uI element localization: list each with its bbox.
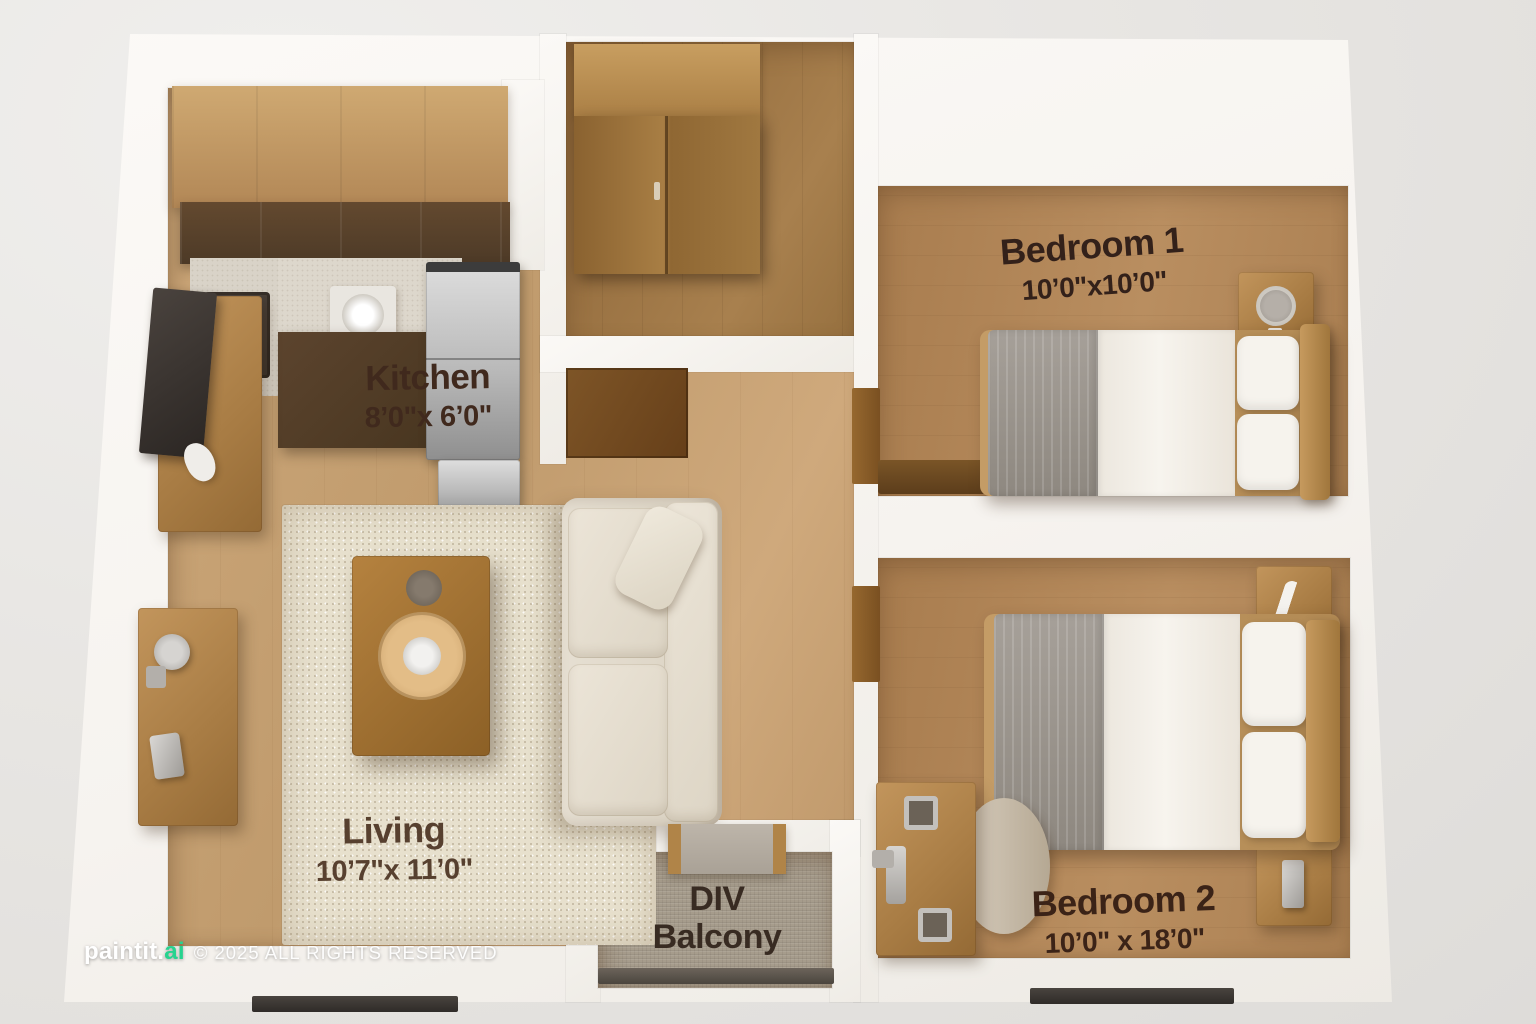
desk-gadget-cap — [872, 850, 894, 868]
bedroom-2-name: Bedroom 2 — [1031, 878, 1216, 925]
wardrobe-seam — [665, 116, 668, 274]
bedroom-2-door — [852, 586, 880, 682]
sideboard — [138, 608, 238, 826]
coffee-table-decor — [406, 570, 442, 606]
bedroom-1-blanket — [988, 330, 1098, 496]
wardrobe-handle — [654, 182, 660, 200]
bedroom-2-pillow-1 — [1242, 622, 1306, 726]
balcony-railing — [598, 968, 834, 984]
wardrobe-top — [574, 44, 760, 118]
bedroom-1-headboard — [1300, 324, 1330, 500]
sideboard-decor-vessel — [149, 732, 185, 780]
sideboard-decor-cube — [146, 666, 166, 688]
bedroom-2-nightstand-bottom — [1256, 846, 1332, 926]
living-name: Living — [315, 809, 473, 852]
desk-gadget-2 — [918, 908, 952, 942]
sofa-cushion-bottom — [568, 664, 668, 816]
wall-closet-bottom — [540, 336, 860, 372]
kitchen-pot — [342, 294, 384, 336]
closet-door — [566, 368, 688, 458]
watermark: paintit.ai © 2025 ALL RIGHTS RESERVED — [84, 938, 498, 966]
kitchen-cabinet-fronts — [180, 202, 510, 264]
bedroom-2-window-strip — [1030, 988, 1234, 1004]
coffee-table — [352, 556, 490, 756]
living-dimensions: 10’7"x 11’0" — [316, 854, 474, 889]
living-window-strip — [252, 996, 458, 1012]
sideboard-decor-bowl — [154, 634, 190, 670]
bedroom-1-lamp — [1256, 286, 1296, 326]
kitchen-fridge-top — [426, 262, 520, 272]
bedroom-1-label: Bedroom 1 10’0"x10’0" — [999, 220, 1187, 308]
bedroom-1-pillow-2 — [1237, 414, 1299, 490]
bedroom-2-nightstand-item — [1282, 860, 1304, 908]
desk-gadget-1 — [904, 796, 938, 830]
living-label: Living 10’7"x 11’0" — [315, 809, 473, 889]
bedroom-2-duvet — [1104, 614, 1240, 850]
watermark-brand-accent: ai — [164, 938, 184, 965]
bedroom-2-label: Bedroom 2 10’0" x 18’0" — [1031, 878, 1217, 960]
bedroom-2-bed — [984, 614, 1340, 850]
sofa — [562, 498, 722, 826]
kitchen-dimensions: 8’0"x 6’0" — [364, 400, 492, 435]
floorplan-scene: Kitchen 8’0"x 6’0" Bedroom 1 10’0"x10’0"… — [0, 0, 1536, 1024]
wall-balcony-right — [830, 820, 860, 1002]
kitchen-name: Kitchen — [364, 357, 492, 398]
balcony-label-line1: DIV — [653, 880, 782, 918]
balcony-label: DIV Balcony — [653, 880, 782, 956]
bedroom-2-desk — [876, 782, 976, 956]
bedroom-1-duvet — [1098, 330, 1235, 496]
watermark-copyright: © 2025 ALL RIGHTS RESERVED — [194, 942, 498, 964]
bedroom-2-pillow-2 — [1242, 732, 1306, 838]
watermark-brand: paintit.ai — [84, 938, 185, 966]
bedroom-2-headboard — [1306, 620, 1340, 842]
wardrobe-doors — [574, 116, 760, 274]
watermark-brand-text: paintit. — [84, 938, 164, 965]
balcony-bench — [668, 824, 786, 874]
coffee-table-dish — [403, 637, 441, 675]
bedroom-2-dimensions: 10’0" x 18’0" — [1033, 922, 1218, 960]
bedroom-1-bed — [980, 330, 1330, 496]
balcony-label-line2: Balcony — [653, 918, 782, 956]
kitchen-label: Kitchen 8’0"x 6’0" — [364, 357, 493, 435]
bedroom-1-door — [852, 388, 880, 484]
coffee-table-tray — [378, 612, 466, 700]
kitchen-upper-cabinets — [172, 86, 508, 208]
bedroom-1-pillow-1 — [1237, 336, 1299, 410]
